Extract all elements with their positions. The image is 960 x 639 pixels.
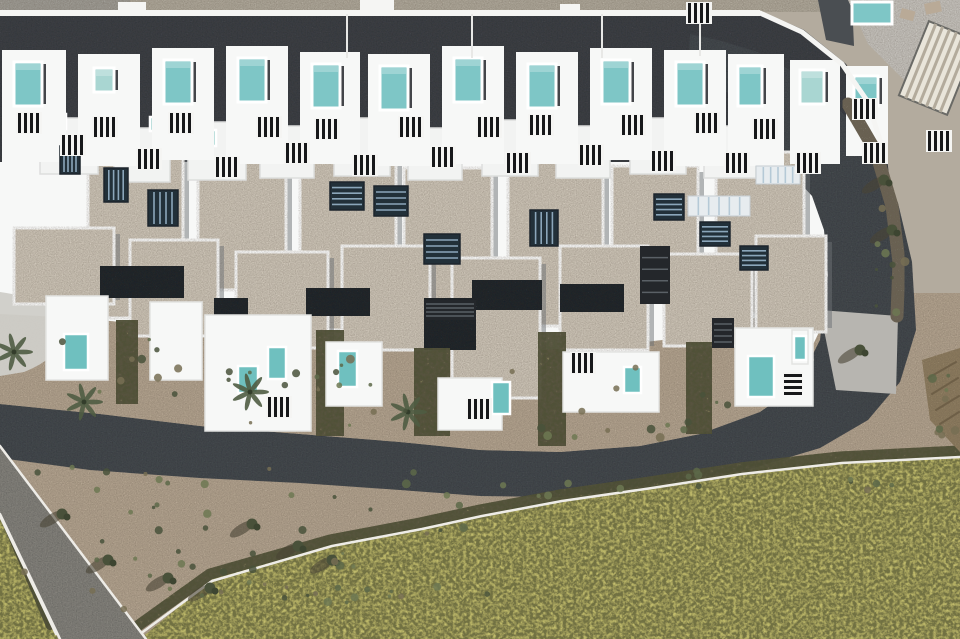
lounger-pair-stripe	[304, 143, 307, 163]
lounger-pair-stripe	[170, 113, 173, 133]
shrub	[226, 378, 230, 382]
lounger-pair-group	[724, 152, 750, 174]
shrub	[890, 276, 894, 280]
lounger-pair-group	[476, 116, 502, 138]
lounger-pair-stripe	[872, 99, 875, 119]
shrub	[34, 469, 40, 475]
lounger-pair-stripe	[754, 119, 757, 139]
plunge-pool	[64, 334, 88, 370]
shrub	[298, 526, 306, 534]
lounger-pair-stripe	[62, 135, 65, 155]
shrub	[333, 495, 337, 499]
lounger-pair-stripe	[228, 157, 231, 177]
shrub	[89, 588, 95, 594]
tree	[886, 180, 893, 187]
shrub	[59, 338, 66, 345]
lounger-pair-group	[926, 130, 952, 152]
tree	[862, 350, 869, 357]
striped-steps-group	[783, 372, 803, 395]
tree	[300, 546, 307, 553]
lounger-pair-group	[352, 154, 378, 176]
lounger-pair-stripe	[702, 113, 705, 133]
lounger-pair-group	[694, 112, 720, 134]
lounger-pair-stripe	[496, 117, 499, 137]
lounger-pair-group	[256, 116, 282, 138]
shrub	[189, 564, 195, 570]
lounger-pair-group	[430, 146, 456, 168]
terrace-pool	[852, 2, 892, 24]
lounger-pair-stripe	[400, 117, 403, 137]
skylight	[530, 210, 558, 246]
lounger-pair-stripe	[584, 353, 587, 373]
lounger-pair-stripe	[864, 143, 867, 163]
palm-trunk	[82, 400, 87, 405]
lounger-pair-group	[528, 114, 554, 136]
lounger-pair-stripe	[592, 145, 595, 165]
striped-steps-stripe	[784, 392, 802, 395]
lounger-pair-stripe	[714, 113, 717, 133]
lounger-pair-stripe	[258, 117, 261, 137]
skylight	[104, 168, 128, 202]
lounger-pair-stripe	[418, 117, 421, 137]
shrub	[348, 424, 351, 427]
lounger-pair-group	[686, 2, 712, 24]
shrub	[155, 476, 162, 483]
lounger-pair-stripe	[700, 3, 703, 23]
shrub	[942, 396, 949, 403]
lounger-pair-stripe	[480, 399, 483, 419]
lounger-pair-stripe	[474, 399, 477, 419]
lounger-pair-stripe	[670, 151, 673, 171]
shrub	[103, 468, 110, 475]
shrub	[219, 590, 224, 595]
shrub	[848, 477, 854, 483]
palm-trunk	[12, 350, 17, 355]
shrub	[946, 374, 950, 378]
parapet-block	[560, 4, 580, 16]
lounger-pair-stripe	[286, 143, 289, 163]
stairway	[640, 246, 670, 304]
lounger-pair-stripe	[726, 153, 729, 173]
lounger-pair-stripe	[444, 147, 447, 167]
lounger-pair-stripe	[18, 113, 21, 133]
pool-highlight	[16, 64, 40, 70]
lounger-pair-stripe	[286, 397, 289, 417]
shrub	[220, 568, 227, 575]
lounger-pair-stripe	[270, 117, 273, 137]
gravel-roof	[14, 228, 114, 304]
lounger-pair-stripe	[738, 153, 741, 173]
lounger-pair-stripe	[934, 131, 937, 151]
lounger-pair-stripe	[525, 153, 528, 173]
lounger-pair-stripe	[334, 119, 337, 139]
skylight	[148, 190, 178, 226]
lounger-pair-stripe	[688, 3, 691, 23]
shrub	[306, 594, 309, 597]
shrub	[936, 425, 943, 432]
lounger-pair-stripe	[276, 117, 279, 137]
shrub	[247, 580, 252, 585]
lounger-pair-stripe	[866, 99, 869, 119]
shrub	[203, 510, 211, 518]
shrub	[137, 355, 146, 364]
lounger-pair-stripe	[652, 151, 655, 171]
shrub	[371, 409, 377, 415]
roof-gap	[472, 280, 542, 310]
lounger-pair-stripe	[234, 157, 237, 177]
lounger-pair-stripe	[803, 153, 806, 173]
shrub	[345, 600, 349, 604]
shrub	[336, 382, 342, 388]
shrub	[433, 583, 441, 591]
lounger-pair-group	[862, 142, 888, 164]
shrub	[98, 390, 102, 394]
shrub	[133, 556, 137, 560]
shrub	[543, 431, 552, 440]
shrub	[510, 369, 515, 374]
shrub	[388, 594, 392, 598]
lounger-pair-group	[398, 116, 424, 138]
shrub	[951, 426, 960, 435]
shrub	[282, 382, 288, 388]
shrub	[176, 549, 181, 554]
lounger-pair-stripe	[760, 119, 763, 139]
stairway	[424, 300, 476, 320]
lounger-pair-stripe	[450, 147, 453, 167]
shrub	[200, 593, 204, 597]
pool-highlight	[96, 70, 112, 76]
shrub	[656, 433, 665, 442]
shrub	[864, 486, 871, 493]
shrub	[178, 560, 186, 568]
lounger-pair-stripe	[536, 115, 539, 135]
shrub	[331, 558, 338, 565]
plunge-pool	[268, 347, 286, 379]
shrub	[873, 480, 880, 487]
shrub	[249, 421, 252, 424]
pool-highlight	[530, 66, 554, 72]
shrub	[881, 249, 889, 257]
shrub	[346, 355, 355, 364]
lounger-pair-stripe	[578, 353, 581, 373]
shrub	[316, 388, 320, 392]
shrub	[680, 426, 687, 433]
shrub	[633, 365, 639, 371]
planted-strip	[116, 320, 138, 404]
lounger-pair-stripe	[36, 113, 39, 133]
shrub	[341, 552, 344, 555]
shrub	[696, 483, 702, 489]
tree	[64, 514, 71, 521]
pool-highlight	[856, 78, 876, 84]
skylight	[700, 222, 730, 246]
lounger-pair-stripe	[360, 155, 363, 175]
shrub	[875, 304, 878, 307]
shrub	[154, 347, 159, 352]
aerial-resort-photo	[0, 0, 960, 639]
lounger-pair-stripe	[946, 131, 949, 151]
shrub	[351, 564, 355, 568]
lounger-pair-group	[578, 144, 604, 166]
lounger-pair-stripe	[274, 397, 277, 417]
lounger-pair-stripe	[882, 143, 885, 163]
lounger-pair-stripe	[766, 119, 769, 139]
lounger-pair-group	[752, 118, 778, 140]
lounger-pair-stripe	[106, 117, 109, 137]
lounger-pair-stripe	[744, 153, 747, 173]
lounger-pair-stripe	[580, 145, 583, 165]
tree	[254, 524, 261, 531]
shrub	[544, 491, 552, 499]
pool-highlight	[802, 72, 822, 78]
shrub	[724, 401, 731, 408]
lounger-pair-stripe	[860, 99, 863, 119]
shrub	[121, 606, 127, 612]
shrub	[665, 423, 670, 428]
lounger-pair-stripe	[530, 115, 533, 135]
roof-gap	[560, 284, 624, 312]
shrub	[368, 507, 372, 511]
shrub	[368, 383, 372, 387]
lounger-pair-stripe	[468, 399, 471, 419]
pool-highlight	[456, 60, 480, 66]
shrub	[425, 531, 429, 535]
shrub	[148, 338, 151, 341]
pool-highlight	[240, 60, 264, 66]
shrub	[693, 468, 700, 475]
plunge-pool	[492, 382, 510, 414]
shrub	[172, 391, 178, 397]
lounger-pair-group	[214, 156, 240, 178]
shrub	[154, 502, 159, 507]
striped-steps-stripe	[784, 386, 802, 389]
shrub	[444, 492, 451, 499]
shrub	[892, 308, 900, 316]
striped-steps-stripe	[784, 374, 802, 377]
shrub	[201, 480, 209, 488]
shrub	[154, 374, 162, 382]
shrub	[94, 557, 99, 562]
lounger-pair-stripe	[222, 157, 225, 177]
lounger-pair-stripe	[708, 113, 711, 133]
shrub	[292, 369, 300, 377]
lounger-pair-stripe	[809, 153, 812, 173]
lounger-pair-stripe	[696, 113, 699, 133]
shrub	[263, 582, 267, 586]
roof-gap	[100, 266, 184, 298]
lounger-pair-stripe	[372, 155, 375, 175]
shrub	[248, 371, 252, 375]
lounger-pair-stripe	[292, 143, 295, 163]
lounger-pair-stripe	[24, 113, 27, 133]
pool-highlight	[740, 68, 760, 74]
shrub	[21, 569, 28, 576]
parapet-block	[118, 2, 146, 16]
lounger-pair-stripe	[628, 115, 631, 135]
lounger-pair-stripe	[940, 131, 943, 151]
lounger-pair-stripe	[732, 153, 735, 173]
lounger-pair-stripe	[100, 117, 103, 137]
shrub	[143, 472, 147, 476]
lounger-pair-stripe	[432, 147, 435, 167]
tree	[894, 230, 901, 237]
shrub	[536, 494, 540, 498]
lounger-pair-stripe	[572, 353, 575, 373]
shrub	[901, 257, 910, 266]
lounger-pair-stripe	[490, 117, 493, 137]
shrub	[335, 585, 341, 591]
skylight	[330, 182, 364, 210]
shrub	[537, 424, 545, 432]
lounger-pair-stripe	[438, 147, 441, 167]
lounger-pair-stripe	[30, 113, 33, 133]
lounger-pair-stripe	[80, 135, 83, 155]
lounger-pair-stripe	[182, 113, 185, 133]
lounger-pair-stripe	[854, 99, 857, 119]
lounger-pair-stripe	[928, 131, 931, 151]
lounger-pair-stripe	[586, 145, 589, 165]
lounger-pair-group	[570, 352, 596, 374]
lounger-pair-stripe	[513, 153, 516, 173]
shrub	[250, 550, 256, 556]
tree	[110, 560, 117, 567]
shrub	[410, 469, 417, 476]
shrub	[879, 205, 886, 212]
shrub	[459, 523, 468, 532]
shrub	[944, 388, 948, 392]
pool-highlight	[382, 68, 406, 74]
shrub	[456, 502, 463, 509]
lounger-pair-stripe	[634, 115, 637, 135]
lounger-pair-group	[620, 114, 646, 136]
shrub	[313, 591, 318, 596]
lounger-pair-stripe	[870, 143, 873, 163]
lounger-pair-stripe	[507, 153, 510, 173]
shrub	[148, 573, 152, 577]
shrub	[285, 585, 289, 589]
shrub	[203, 525, 209, 531]
roof-gap	[306, 288, 370, 316]
lounger-pair-stripe	[316, 119, 319, 139]
lounger-pair-group	[466, 398, 492, 420]
lounger-pair-stripe	[412, 117, 415, 137]
shrub	[168, 587, 172, 591]
shrub	[403, 409, 407, 413]
shrub	[891, 225, 897, 231]
shrub	[402, 479, 411, 488]
shrub	[351, 593, 359, 601]
shrub	[152, 506, 155, 509]
lounger-pair-stripe	[264, 117, 267, 137]
aerial-scene-canvas	[0, 0, 960, 639]
shrub	[226, 368, 233, 375]
lounger-pair-stripe	[268, 397, 271, 417]
lounger-pair-stripe	[216, 157, 219, 177]
lounger-pair-stripe	[176, 113, 179, 133]
shrub	[647, 425, 656, 434]
lounger-pair-stripe	[815, 153, 818, 173]
lounger-pair-stripe	[322, 119, 325, 139]
skylight	[424, 234, 460, 264]
lounger-pair-stripe	[706, 3, 709, 23]
lounger-pair-stripe	[484, 117, 487, 137]
shrub	[340, 364, 343, 367]
shrub	[684, 418, 691, 425]
plunge-pool	[748, 356, 774, 397]
lounger-pair-stripe	[298, 143, 301, 163]
tree	[212, 588, 219, 595]
lounger-pair-stripe	[328, 119, 331, 139]
shrub	[438, 528, 442, 532]
shrub	[390, 590, 394, 594]
lounger-pair-stripe	[590, 353, 593, 373]
lounger-pair-stripe	[486, 399, 489, 419]
lounger-pair-group	[136, 148, 162, 170]
shrub	[155, 526, 163, 534]
lounger-pair-group	[92, 116, 118, 138]
lounger-pair-stripe	[658, 151, 661, 171]
pool-highlight	[314, 66, 338, 72]
shrub	[117, 377, 125, 385]
lounger-pair-stripe	[406, 117, 409, 137]
lounger-pair-stripe	[772, 119, 775, 139]
lounger-pair-stripe	[664, 151, 667, 171]
shrub	[889, 262, 895, 268]
stairway	[712, 318, 734, 348]
lounger-pair-group	[60, 134, 86, 156]
lounger-pair-group	[505, 152, 531, 174]
shrub	[875, 268, 878, 271]
lounger-pair-stripe	[144, 149, 147, 169]
shrub	[288, 492, 294, 498]
shrub	[364, 586, 370, 592]
shrub	[617, 485, 625, 493]
lounger-pair-stripe	[797, 153, 800, 173]
plunge-pool	[624, 367, 641, 393]
plunge-pool	[794, 336, 806, 360]
lounger-pair-stripe	[156, 149, 159, 169]
lounger-pair-stripe	[150, 149, 153, 169]
lounger-pair-stripe	[112, 117, 115, 137]
lounger-pair-stripe	[519, 153, 522, 173]
shrub	[315, 374, 320, 379]
shrub	[174, 364, 182, 372]
shrub	[129, 356, 135, 362]
shrub	[282, 595, 288, 601]
lounger-pair-stripe	[640, 115, 643, 135]
lounger-pair-stripe	[478, 117, 481, 137]
lounger-pair-group	[795, 152, 821, 174]
shrub	[500, 482, 506, 488]
shrub	[249, 566, 257, 574]
lounger-pair-stripe	[622, 115, 625, 135]
lounger-pair-stripe	[542, 115, 545, 135]
pool-highlight	[678, 64, 702, 70]
lounger-pair-stripe	[876, 143, 879, 163]
shrub	[324, 598, 332, 606]
lounger-pair-group	[16, 112, 42, 134]
shrub	[484, 591, 490, 597]
shrub	[686, 474, 692, 480]
shrub	[578, 408, 585, 415]
lounger-pair-stripe	[138, 149, 141, 169]
striped-steps-stripe	[784, 380, 802, 383]
lounger-pair-stripe	[694, 3, 697, 23]
lounger-pair-group	[284, 142, 310, 164]
lounger-pair-stripe	[366, 155, 369, 175]
lounger-pair-group	[852, 98, 878, 120]
lounger-pair-group	[650, 150, 676, 172]
